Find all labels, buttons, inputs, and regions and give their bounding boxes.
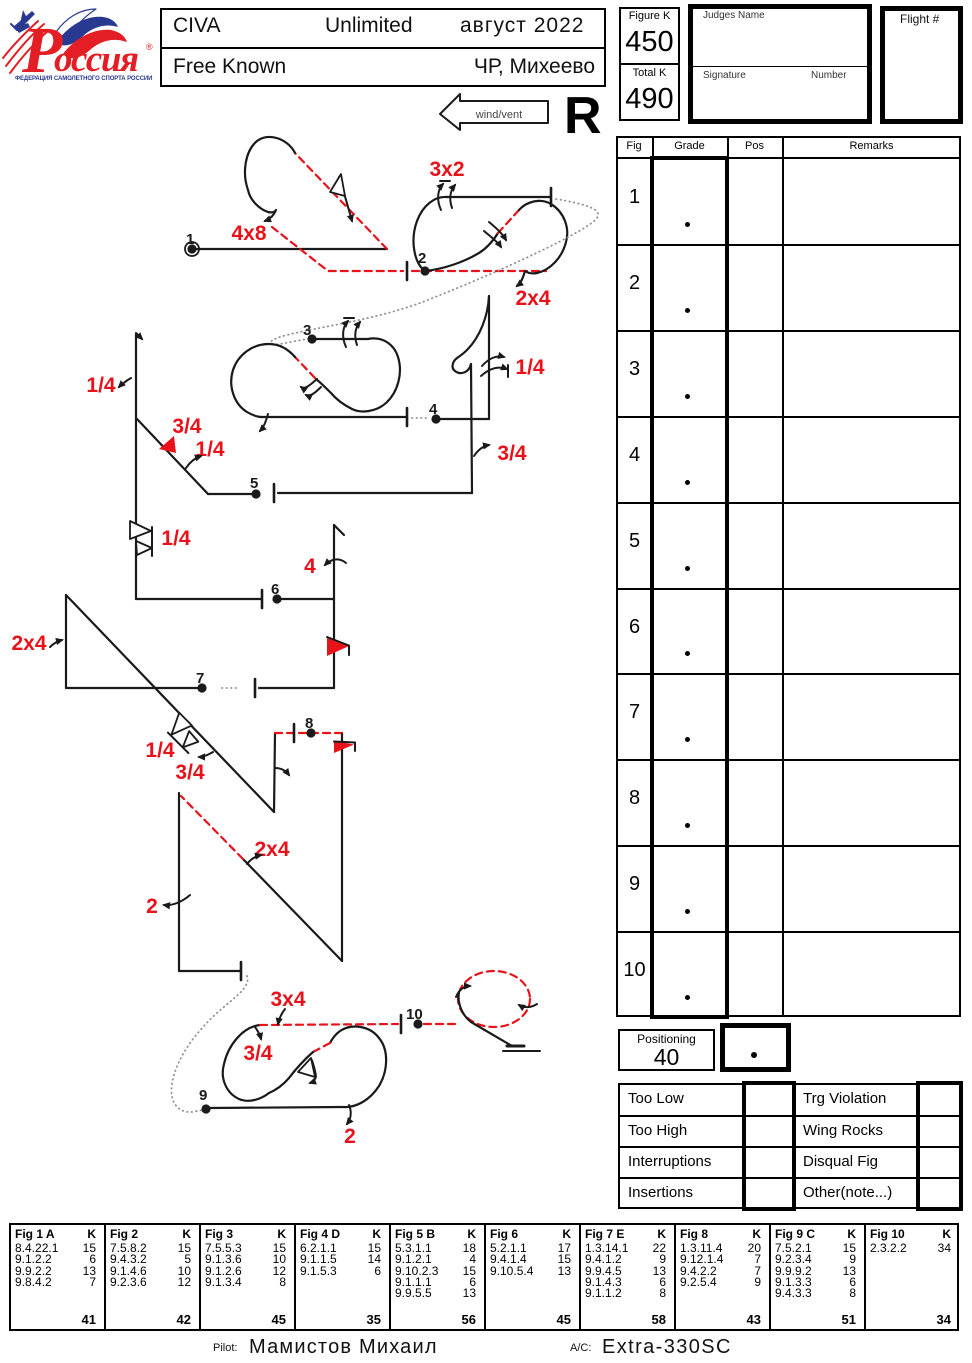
- svg-text:2x4: 2x4: [11, 632, 46, 655]
- svg-text:3/4: 3/4: [172, 415, 202, 438]
- svg-text:3: 3: [303, 322, 311, 339]
- svg-text:1/4: 1/4: [515, 356, 545, 379]
- svg-text:3/4: 3/4: [497, 442, 527, 465]
- svg-text:8: 8: [305, 715, 313, 732]
- svg-text:2x4: 2x4: [515, 287, 550, 310]
- svg-text:3/4: 3/4: [243, 1042, 273, 1065]
- svg-text:®: ®: [146, 42, 153, 52]
- svg-text:9: 9: [199, 1087, 207, 1104]
- svg-text:1/4: 1/4: [86, 374, 116, 397]
- svg-text:R: R: [564, 87, 602, 145]
- svg-text:2: 2: [344, 1125, 356, 1148]
- svg-text:2x4: 2x4: [254, 838, 289, 861]
- svg-text:7: 7: [196, 670, 204, 687]
- svg-text:3x4: 3x4: [270, 988, 305, 1011]
- svg-text:1/4: 1/4: [145, 739, 175, 762]
- svg-text:1/4: 1/4: [195, 438, 225, 461]
- svg-text:оссия: оссия: [54, 39, 138, 80]
- svg-text:ФЕДЕРАЦИЯ САМОЛЕТНОГО СПОРТА Р: ФЕДЕРАЦИЯ САМОЛЕТНОГО СПОРТА РОССИИ: [15, 76, 152, 82]
- svg-text:2: 2: [146, 895, 158, 918]
- svg-text:1/4: 1/4: [161, 527, 191, 550]
- svg-text:3/4: 3/4: [175, 761, 205, 784]
- svg-text:wind/vent: wind/vent: [475, 109, 522, 121]
- svg-text:6: 6: [271, 581, 279, 598]
- svg-text:1: 1: [186, 231, 194, 248]
- svg-text:4: 4: [304, 555, 316, 578]
- svg-text:4x8: 4x8: [231, 222, 266, 245]
- svg-text:5: 5: [250, 475, 258, 492]
- svg-text:3x2: 3x2: [429, 158, 464, 181]
- svg-text:4: 4: [429, 401, 438, 418]
- svg-text:10: 10: [406, 1006, 423, 1023]
